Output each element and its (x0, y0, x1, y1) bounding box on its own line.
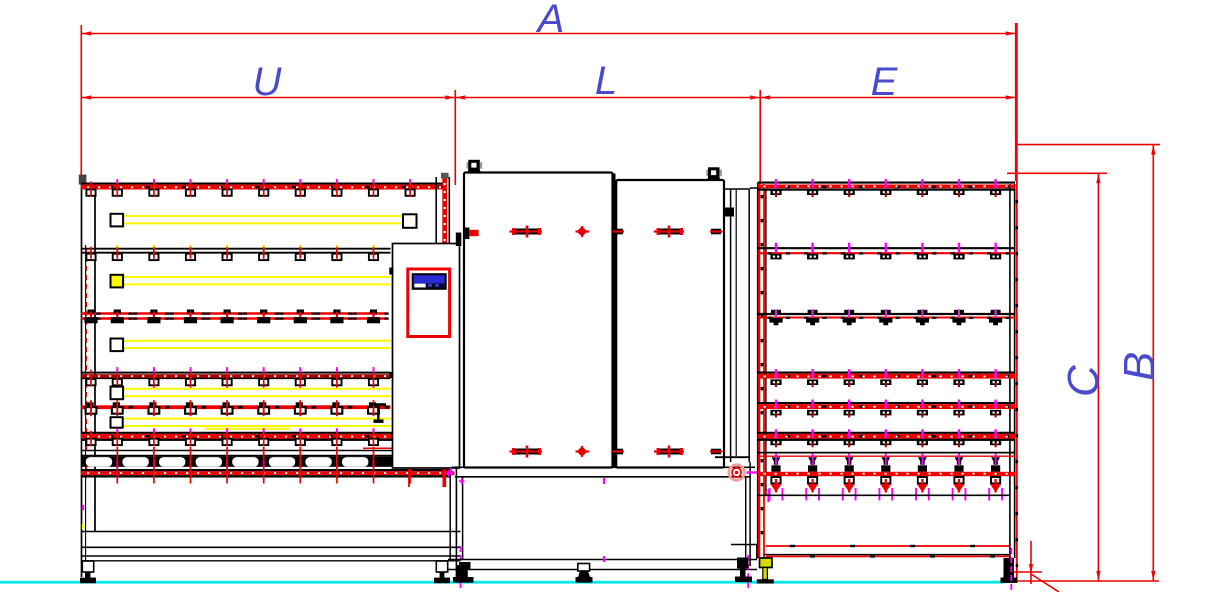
svg-text:U: U (253, 60, 283, 104)
svg-text:B: B (1115, 352, 1164, 381)
svg-text:A: A (536, 0, 565, 41)
svg-text:E: E (871, 60, 899, 104)
svg-text:C: C (1059, 364, 1108, 397)
svg-text:L: L (595, 59, 617, 103)
